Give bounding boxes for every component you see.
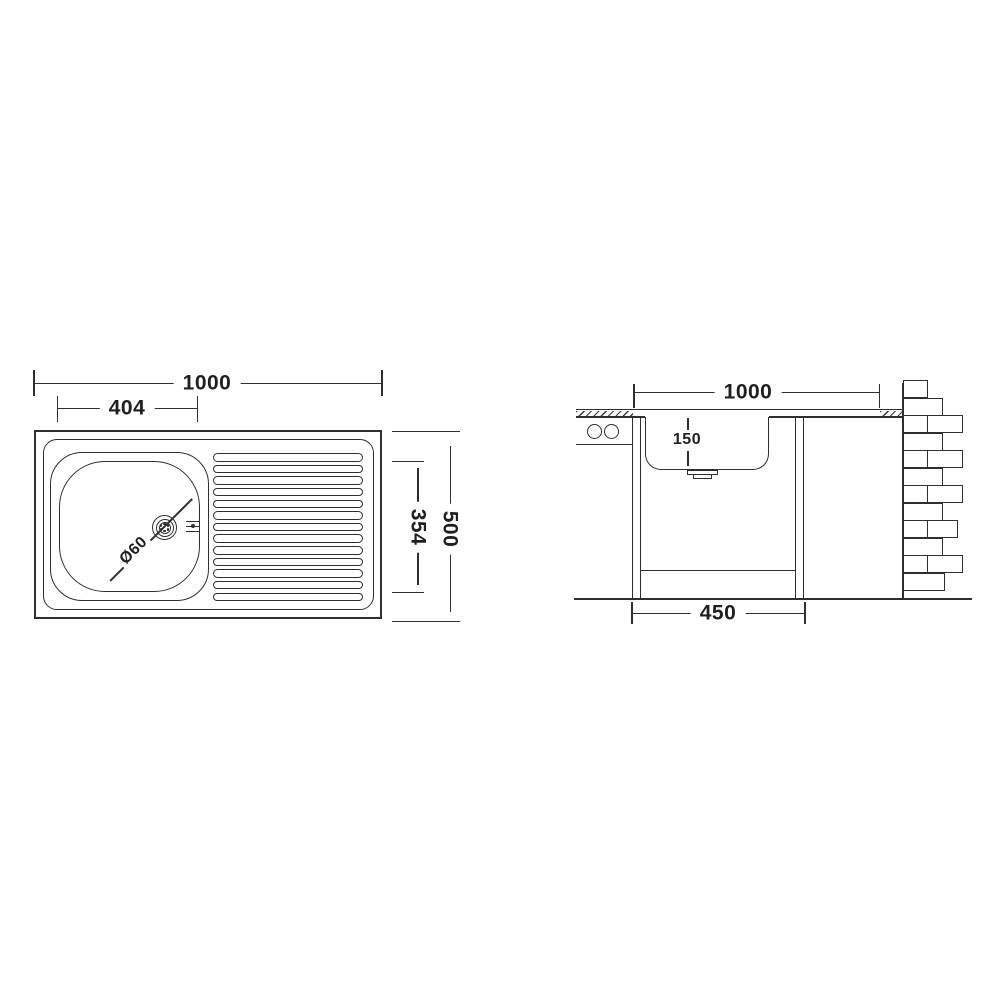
brick xyxy=(903,520,928,538)
cabinet-shelf-line xyxy=(641,570,795,572)
drainboard-rib xyxy=(213,453,363,462)
dim-depth-ext-bottom xyxy=(392,621,460,623)
brick xyxy=(903,433,943,451)
drainboard-rib xyxy=(213,465,363,474)
tap-hole-right xyxy=(604,424,619,439)
bowl-inner-edge xyxy=(59,461,200,592)
brick xyxy=(903,380,928,398)
cabinet-wall-left xyxy=(632,417,641,599)
brick xyxy=(903,573,945,591)
brick xyxy=(927,485,963,503)
drainboard-rib xyxy=(213,534,363,543)
drainboard-rib xyxy=(213,488,363,497)
drainboard-rib xyxy=(213,558,363,567)
sec-dim-width-tick-left xyxy=(633,384,635,408)
dim-bowl-depth-label: 354 xyxy=(408,502,429,553)
brick xyxy=(927,415,963,433)
countertop-underside-right xyxy=(769,416,903,418)
dim-bowl-width-label: 404 xyxy=(100,398,155,419)
front-edge-line xyxy=(576,444,633,446)
drainboard-rib xyxy=(213,476,363,485)
drainboard-rib xyxy=(213,581,363,590)
brick xyxy=(903,415,928,433)
brick xyxy=(927,450,963,468)
sec-dim-bowl-depth-dash-top xyxy=(687,418,689,430)
drainboard-ribs xyxy=(213,453,363,601)
ground-line xyxy=(574,598,972,600)
strainer-hole xyxy=(167,528,169,530)
brick xyxy=(903,538,943,556)
sec-dim-bowl-depth-label: 150 xyxy=(669,432,705,448)
cabinet-wall-right xyxy=(795,417,804,599)
sec-dim-base-label: 450 xyxy=(691,603,746,624)
technical-drawing-canvas: 1000 404 Ø60 xyxy=(0,0,1000,1000)
drainboard-rib xyxy=(213,593,363,602)
brick xyxy=(903,468,943,486)
dim-bowl-width-tick-right xyxy=(197,396,199,422)
drainboard-rib xyxy=(213,546,363,555)
brick xyxy=(927,520,958,538)
dim-depth-label: 500 xyxy=(440,504,461,555)
dim-depth-ext-top xyxy=(392,431,460,433)
drainboard-rib xyxy=(213,511,363,520)
brick xyxy=(903,555,928,573)
dim-bowl-depth-ext-bottom xyxy=(392,592,424,594)
brick xyxy=(903,503,943,521)
brick xyxy=(903,398,943,416)
drainboard-rib xyxy=(213,523,363,532)
drainboard-rib xyxy=(213,500,363,509)
brick xyxy=(903,485,928,503)
dim-bowl-width-tick-left xyxy=(57,396,59,422)
dim-top-width-label: 1000 xyxy=(174,373,241,394)
sec-dim-bowl-depth-dash-bottom xyxy=(687,451,689,466)
dim-bowl-depth-ext-top xyxy=(392,461,424,463)
brick xyxy=(903,450,928,468)
sec-dim-width-label: 1000 xyxy=(715,382,782,403)
tap-hole-left xyxy=(587,424,602,439)
brick xyxy=(927,555,963,573)
bowl-section xyxy=(645,417,769,470)
sec-dim-width-tick-right xyxy=(879,384,881,408)
drainboard-rib xyxy=(213,569,363,578)
